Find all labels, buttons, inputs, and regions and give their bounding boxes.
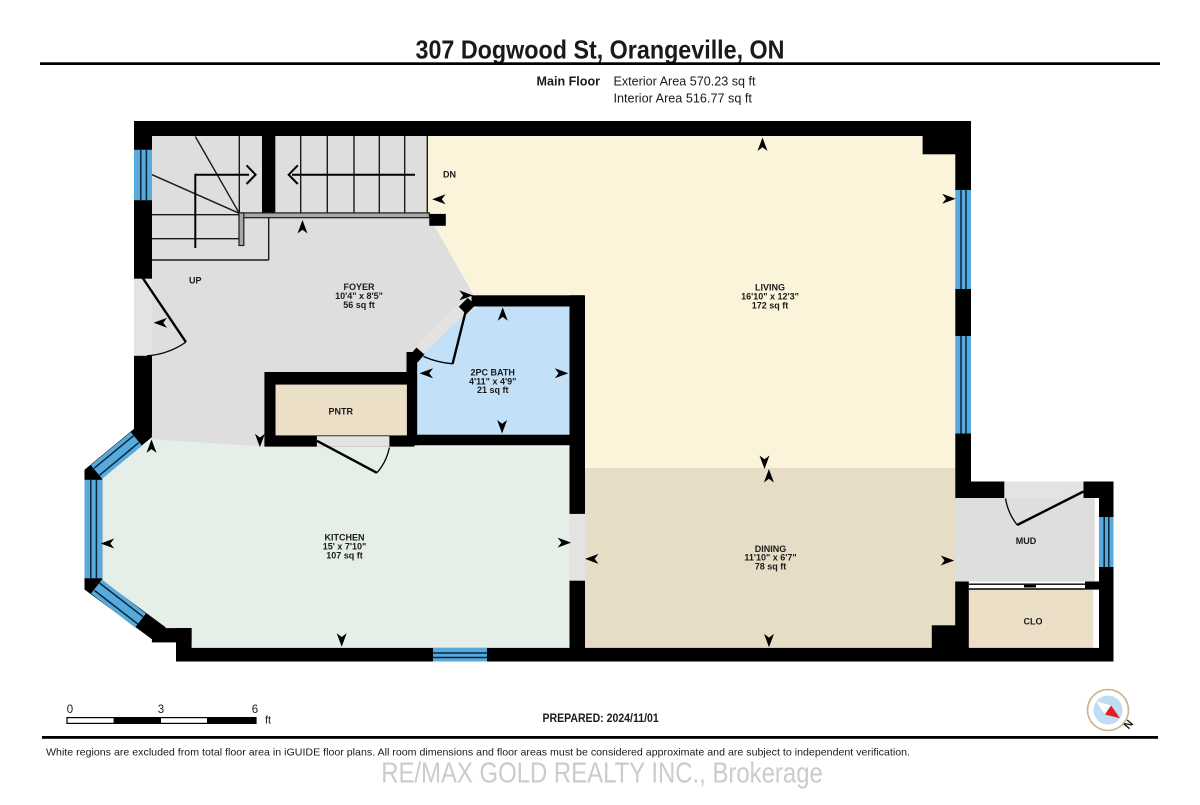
- svg-text:UP: UP: [189, 276, 202, 286]
- svg-text:307 Dogwood St, Orangeville, O: 307 Dogwood St, Orangeville, ON: [416, 35, 785, 65]
- svg-text:DN: DN: [443, 170, 456, 180]
- svg-text:Exterior Area 570.23 sq ft: Exterior Area 570.23 sq ft: [614, 73, 756, 88]
- svg-text:Main Floor: Main Floor: [537, 73, 601, 88]
- svg-text:107 sq ft: 107 sq ft: [326, 550, 363, 560]
- svg-text:White regions are excluded fro: White regions are excluded from total fl…: [46, 746, 910, 758]
- svg-text:78 sq ft: 78 sq ft: [755, 561, 787, 571]
- svg-text:Interior Area 516.77 sq ft: Interior Area 516.77 sq ft: [614, 91, 753, 106]
- svg-text:CLO: CLO: [1024, 616, 1043, 626]
- svg-text:ft: ft: [265, 715, 271, 727]
- svg-text:0: 0: [67, 704, 73, 716]
- svg-text:6: 6: [252, 704, 258, 716]
- svg-text:172 sq ft: 172 sq ft: [752, 301, 789, 311]
- svg-text:MUD: MUD: [1016, 536, 1037, 546]
- svg-text:PREPARED: 2024/11/01: PREPARED: 2024/11/01: [542, 711, 659, 725]
- svg-text:3: 3: [158, 704, 164, 716]
- svg-text:PNTR: PNTR: [329, 407, 354, 417]
- svg-text:56 sq ft: 56 sq ft: [343, 300, 375, 310]
- svg-text:RE/MAX GOLD REALTY INC., Broke: RE/MAX GOLD REALTY INC., Brokerage: [381, 758, 823, 790]
- svg-text:21 sq ft: 21 sq ft: [477, 385, 509, 395]
